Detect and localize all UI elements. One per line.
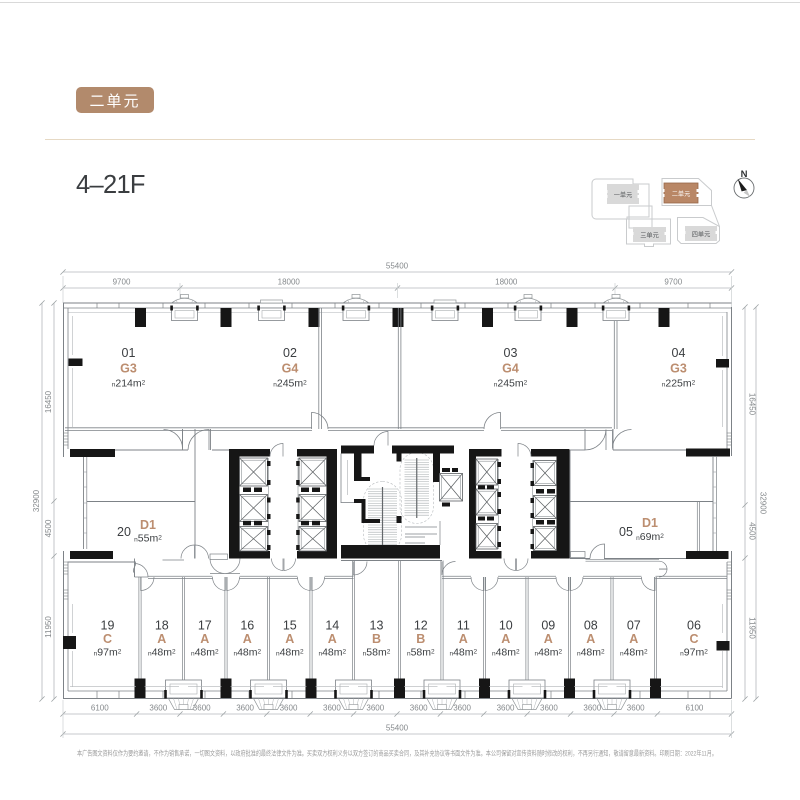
svg-text:n245m2: n245m2 — [273, 378, 307, 390]
svg-text:10: 10 — [499, 619, 513, 633]
svg-text:n48m2: n48m2 — [276, 647, 304, 659]
svg-text:n48m2: n48m2 — [191, 647, 219, 659]
svg-text:11: 11 — [457, 619, 470, 633]
svg-text:n55m2: n55m2 — [134, 533, 162, 545]
svg-text:C: C — [103, 632, 112, 646]
svg-text:20: 20 — [117, 525, 131, 539]
svg-text:n48m2: n48m2 — [620, 647, 648, 659]
svg-text:4500: 4500 — [44, 519, 53, 537]
svg-text:C: C — [689, 632, 698, 646]
svg-text:A: A — [501, 632, 510, 646]
svg-text:16450: 16450 — [748, 393, 757, 416]
svg-text:9700: 9700 — [664, 278, 682, 287]
svg-text:二单元: 二单元 — [672, 190, 691, 198]
svg-text:6100: 6100 — [686, 704, 704, 713]
svg-text:09: 09 — [541, 619, 555, 633]
svg-text:A: A — [459, 632, 468, 646]
svg-text:N: N — [741, 169, 748, 180]
svg-text:n97m2: n97m2 — [94, 647, 122, 659]
svg-text:3600: 3600 — [540, 704, 558, 713]
svg-text:05: 05 — [619, 525, 633, 539]
svg-text:A: A — [544, 632, 553, 646]
svg-text:D1: D1 — [642, 516, 658, 530]
svg-text:16: 16 — [240, 619, 254, 633]
svg-text:08: 08 — [584, 619, 598, 633]
svg-text:n225m2: n225m2 — [662, 378, 696, 390]
svg-text:4500: 4500 — [748, 522, 757, 540]
svg-text:3600: 3600 — [366, 704, 384, 713]
svg-text:A: A — [285, 632, 294, 646]
svg-text:11950: 11950 — [44, 616, 53, 638]
svg-text:本广告图文资料仅作为要约邀请，不作为销售承诺，一切图文资料，: 本广告图文资料仅作为要约邀请，不作为销售承诺，一切图文资料，以政府批准的最终法律… — [77, 749, 717, 758]
svg-text:n58m2: n58m2 — [363, 647, 391, 659]
svg-text:16450: 16450 — [44, 390, 53, 413]
svg-text:4–21F: 4–21F — [76, 171, 145, 199]
svg-text:n48m2: n48m2 — [148, 647, 176, 659]
svg-text:四单元: 四单元 — [692, 231, 711, 239]
svg-text:18: 18 — [155, 619, 169, 633]
svg-text:A: A — [629, 632, 638, 646]
svg-text:9700: 9700 — [113, 278, 131, 287]
svg-text:13: 13 — [370, 619, 384, 633]
svg-text:32900: 32900 — [32, 489, 41, 512]
svg-text:n214m2: n214m2 — [112, 378, 146, 390]
svg-text:A: A — [200, 632, 209, 646]
svg-text:19: 19 — [101, 619, 115, 633]
svg-text:D1: D1 — [140, 518, 156, 532]
svg-text:n48m2: n48m2 — [318, 647, 346, 659]
svg-text:n48m2: n48m2 — [233, 647, 261, 659]
svg-text:二单元: 二单元 — [89, 93, 140, 110]
svg-text:04: 04 — [672, 346, 686, 360]
svg-text:G3: G3 — [670, 362, 687, 376]
svg-text:18000: 18000 — [495, 278, 518, 287]
svg-text:3600: 3600 — [149, 704, 167, 713]
svg-text:n48m2: n48m2 — [449, 647, 477, 659]
svg-text:07: 07 — [627, 619, 641, 633]
svg-text:6100: 6100 — [91, 704, 109, 713]
svg-text:03: 03 — [504, 346, 518, 360]
svg-text:06: 06 — [687, 619, 701, 633]
svg-text:A: A — [243, 632, 252, 646]
svg-text:55400: 55400 — [386, 724, 409, 733]
svg-text:n58m2: n58m2 — [407, 647, 435, 659]
svg-text:3600: 3600 — [410, 704, 428, 713]
svg-text:n48m2: n48m2 — [534, 647, 562, 659]
svg-text:3600: 3600 — [280, 704, 298, 713]
svg-text:一单元: 一单元 — [614, 191, 633, 199]
svg-text:02: 02 — [283, 346, 297, 360]
svg-text:3600: 3600 — [323, 704, 341, 713]
svg-text:n97m2: n97m2 — [680, 647, 708, 659]
svg-text:17: 17 — [198, 619, 212, 633]
svg-text:B: B — [372, 632, 381, 646]
svg-text:n48m2: n48m2 — [577, 647, 605, 659]
svg-text:12: 12 — [414, 619, 428, 633]
svg-text:3600: 3600 — [193, 704, 211, 713]
svg-text:15: 15 — [283, 619, 297, 633]
svg-text:3600: 3600 — [583, 704, 601, 713]
svg-text:B: B — [416, 632, 425, 646]
svg-text:11950: 11950 — [748, 617, 757, 639]
svg-text:3600: 3600 — [453, 704, 471, 713]
svg-text:32900: 32900 — [759, 492, 768, 515]
svg-text:3600: 3600 — [627, 704, 645, 713]
svg-text:A: A — [328, 632, 337, 646]
svg-text:3600: 3600 — [236, 704, 254, 713]
svg-text:3600: 3600 — [497, 704, 515, 713]
svg-text:n69m2: n69m2 — [636, 531, 664, 543]
svg-text:55400: 55400 — [386, 262, 409, 271]
svg-text:G4: G4 — [502, 362, 519, 376]
svg-text:三单元: 三单元 — [640, 232, 659, 240]
svg-text:14: 14 — [325, 619, 339, 633]
svg-text:A: A — [586, 632, 595, 646]
svg-text:n48m2: n48m2 — [492, 647, 520, 659]
svg-text:n245m2: n245m2 — [494, 378, 528, 390]
svg-text:A: A — [157, 632, 166, 646]
svg-text:01: 01 — [122, 346, 136, 360]
svg-text:G4: G4 — [282, 362, 299, 376]
svg-text:G3: G3 — [120, 362, 137, 376]
svg-text:18000: 18000 — [278, 278, 301, 287]
